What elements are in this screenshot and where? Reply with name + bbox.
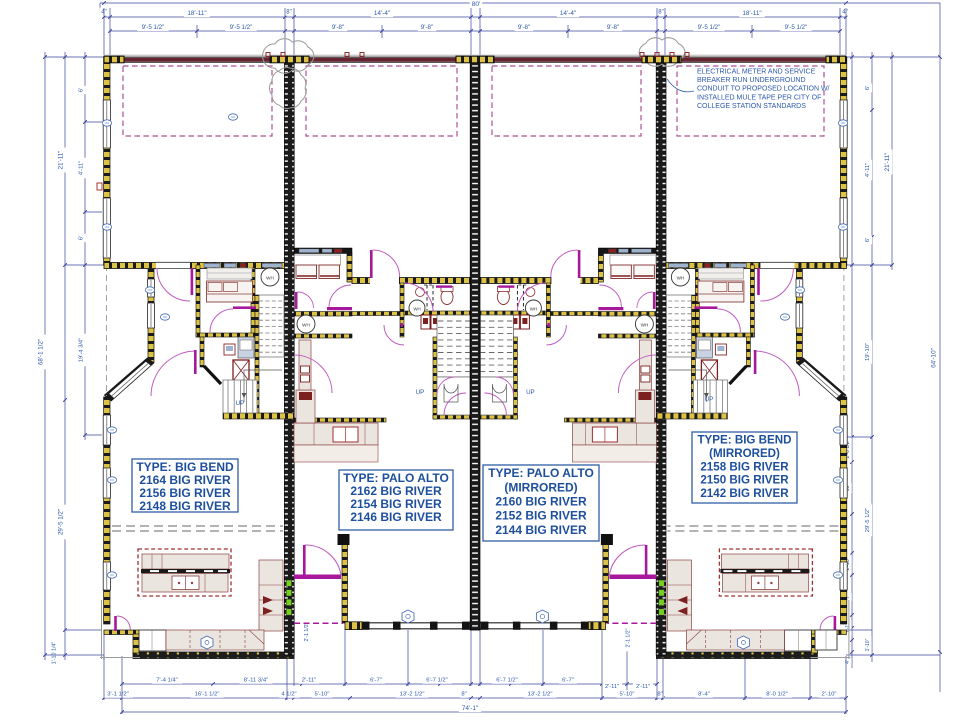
svg-text:6'-7": 6'-7" bbox=[562, 678, 574, 684]
svg-text:29'-5 1/2": 29'-5 1/2" bbox=[865, 508, 871, 532]
svg-text:2162 BIG RIVER: 2162 BIG RIVER bbox=[350, 484, 442, 498]
svg-text:21'-11": 21'-11" bbox=[884, 153, 891, 172]
svg-text:WH: WH bbox=[302, 322, 310, 327]
svg-text:2'-11": 2'-11" bbox=[636, 684, 650, 690]
svg-text:WH: WH bbox=[677, 275, 685, 280]
svg-text:WH: WH bbox=[530, 306, 537, 311]
svg-text:6': 6' bbox=[79, 88, 85, 92]
svg-text:19'-10": 19'-10" bbox=[865, 343, 871, 361]
svg-text:2148 BIG RIVER: 2148 BIG RIVER bbox=[139, 499, 231, 513]
svg-text:14'-4": 14'-4" bbox=[560, 10, 576, 17]
svg-text:4'-11": 4'-11" bbox=[865, 163, 871, 177]
svg-text:68'-1 1/2": 68'-1 1/2" bbox=[38, 339, 45, 365]
svg-text:18'-11": 18'-11" bbox=[187, 10, 206, 17]
svg-text:TYPE: PALO ALTO: TYPE: PALO ALTO bbox=[343, 471, 449, 485]
svg-text:2'-1 1/2": 2'-1 1/2" bbox=[304, 622, 310, 641]
svg-text:WH: WH bbox=[266, 275, 274, 280]
svg-text:13'-2 1/2": 13'-2 1/2" bbox=[528, 692, 553, 698]
svg-text:4'-11": 4'-11" bbox=[79, 161, 85, 175]
svg-text:14'-4": 14'-4" bbox=[374, 10, 390, 17]
svg-text:2158 BIG RIVER: 2158 BIG RIVER bbox=[700, 460, 789, 473]
svg-text:5'-10": 5'-10" bbox=[314, 692, 329, 698]
svg-text:7'-4 1/4": 7'-4 1/4" bbox=[156, 678, 178, 684]
svg-text:2164 BIG RIVER: 2164 BIG RIVER bbox=[139, 473, 231, 487]
svg-text:8": 8" bbox=[286, 10, 291, 16]
svg-text:29'-5 1/2": 29'-5 1/2" bbox=[58, 509, 65, 535]
svg-text:74'-1": 74'-1" bbox=[462, 705, 478, 712]
svg-text:9'-5 1/2": 9'-5 1/2" bbox=[698, 24, 721, 31]
svg-text:2156 BIG RIVER: 2156 BIG RIVER bbox=[139, 486, 231, 500]
svg-text:8'-4": 8'-4" bbox=[698, 692, 710, 698]
svg-text:ELECTRICAL METER AND SERVICE: ELECTRICAL METER AND SERVICE bbox=[697, 69, 816, 76]
svg-text:8": 8" bbox=[658, 10, 663, 16]
svg-text:UP: UP bbox=[705, 396, 714, 403]
svg-text:(MIRRORED): (MIRRORED) bbox=[504, 480, 577, 494]
svg-text:(MIRRORED): (MIRRORED) bbox=[709, 447, 780, 460]
svg-text:21'-11": 21'-11" bbox=[58, 151, 65, 170]
svg-text:9'-5 1/2": 9'-5 1/2" bbox=[230, 24, 253, 31]
svg-text:6'-7": 6'-7" bbox=[370, 678, 382, 684]
svg-text:UP: UP bbox=[416, 389, 425, 396]
svg-text:6': 6' bbox=[79, 236, 85, 240]
svg-text:4 1/2": 4 1/2" bbox=[281, 692, 296, 698]
svg-text:2150 BIG RIVER: 2150 BIG RIVER bbox=[700, 474, 789, 487]
svg-text:2154 BIG RIVER: 2154 BIG RIVER bbox=[350, 497, 442, 511]
svg-text:9'-8": 9'-8" bbox=[421, 24, 433, 31]
svg-text:2146 BIG RIVER: 2146 BIG RIVER bbox=[350, 510, 442, 524]
svg-text:19'-4 3/4": 19'-4 3/4" bbox=[79, 338, 85, 362]
svg-text:TYPE: BIG BEND: TYPE: BIG BEND bbox=[697, 434, 791, 447]
svg-text:13'-2 1/2": 13'-2 1/2" bbox=[400, 692, 425, 698]
svg-text:6'-7 1/2": 6'-7 1/2" bbox=[496, 678, 518, 684]
svg-text:2160 BIG RIVER: 2160 BIG RIVER bbox=[495, 494, 587, 508]
svg-text:9'-8": 9'-8" bbox=[332, 24, 344, 31]
svg-text:WH: WH bbox=[641, 322, 649, 327]
svg-text:2142 BIG RIVER: 2142 BIG RIVER bbox=[700, 487, 789, 500]
svg-text:9'-5 1/2": 9'-5 1/2" bbox=[142, 24, 165, 31]
svg-text:18'-11": 18'-11" bbox=[742, 10, 761, 17]
svg-text:TYPE: PALO ALTO: TYPE: PALO ALTO bbox=[488, 466, 594, 480]
svg-text:2'-11": 2'-11" bbox=[302, 678, 317, 684]
svg-text:TYPE: BIG BEND: TYPE: BIG BEND bbox=[136, 460, 234, 474]
svg-text:INSTALLED MULE TAPE PER CITY O: INSTALLED MULE TAPE PER CITY OF bbox=[697, 94, 821, 101]
svg-text:2152 BIG RIVER: 2152 BIG RIVER bbox=[495, 509, 587, 523]
svg-text:9'-8": 9'-8" bbox=[607, 24, 619, 31]
svg-text:8": 8" bbox=[461, 692, 466, 698]
svg-text:5'-10": 5'-10" bbox=[619, 692, 634, 698]
svg-text:6': 6' bbox=[865, 86, 871, 90]
svg-text:1'-10": 1'-10" bbox=[865, 638, 871, 651]
svg-text:8'-0 1/2": 8'-0 1/2" bbox=[766, 692, 788, 698]
svg-text:16'-1 1/2": 16'-1 1/2" bbox=[195, 692, 220, 698]
svg-text:2'-11": 2'-11" bbox=[605, 684, 619, 690]
svg-text:64'-10": 64'-10" bbox=[931, 348, 938, 368]
svg-text:1'-10 1/4": 1'-10 1/4" bbox=[52, 642, 58, 665]
svg-text:2144 BIG RIVER: 2144 BIG RIVER bbox=[495, 523, 587, 537]
svg-text:6': 6' bbox=[865, 238, 871, 242]
svg-text:2'-10": 2'-10" bbox=[821, 692, 836, 698]
svg-text:WH: WH bbox=[413, 306, 420, 311]
svg-text:CONDUIT TO PROPOSED LOCATION W: CONDUIT TO PROPOSED LOCATION W/ bbox=[697, 86, 830, 93]
svg-text:3'-1 1/2": 3'-1 1/2" bbox=[107, 692, 129, 698]
svg-text:UP: UP bbox=[526, 389, 535, 396]
svg-text:COLLEGE STATION STANDARDS: COLLEGE STATION STANDARDS bbox=[697, 103, 806, 110]
svg-text:8'-11 3/4": 8'-11 3/4" bbox=[244, 678, 268, 684]
svg-text:80': 80' bbox=[472, 1, 481, 8]
svg-text:4": 4" bbox=[842, 10, 847, 16]
svg-text:9'-5 1/2": 9'-5 1/2" bbox=[785, 24, 808, 31]
svg-text:BREAKER RUN UNDERGROUND: BREAKER RUN UNDERGROUND bbox=[697, 77, 806, 84]
svg-text:8": 8" bbox=[657, 692, 662, 698]
svg-text:UP: UP bbox=[236, 400, 245, 407]
svg-text:2'-1 1/2": 2'-1 1/2" bbox=[626, 628, 632, 647]
svg-text:6'-7 1/2": 6'-7 1/2" bbox=[426, 678, 448, 684]
svg-text:9'-8": 9'-8" bbox=[518, 24, 530, 31]
